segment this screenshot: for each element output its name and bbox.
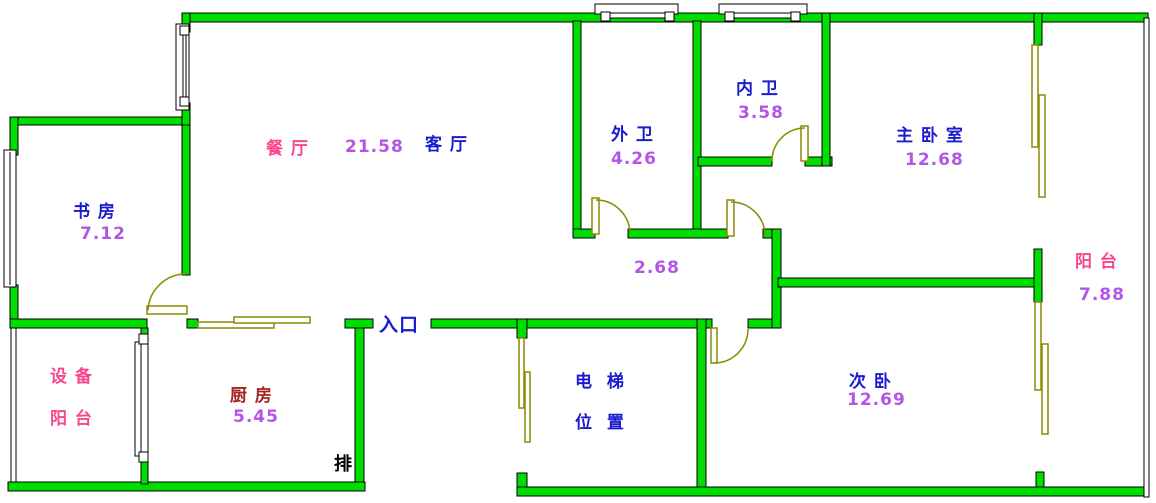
kitchen-sliding-door [198,317,310,328]
outer-bath-label: 外 卫 [611,127,654,144]
study-door [147,274,187,314]
corridor-area: 2.68 [634,260,680,277]
equipment-balcony-label-2: 阳 台 [50,411,93,428]
second-balcony-sliding-door [1035,302,1048,434]
second-bedroom-area: 12.69 [847,392,906,409]
outer-bath-area: 4.26 [611,151,657,168]
balcony-area: 7.88 [1079,287,1125,304]
elevator-sliding-door [519,338,530,442]
kitchen-area: 5.45 [233,409,279,426]
kitchen-divider-window [135,334,148,462]
master-bedroom-label: 主 卧 室 [896,128,964,145]
kitchen-label: 厨 房 [230,388,273,405]
master-bedroom-area: 12.68 [905,152,964,169]
left-upper-window [176,24,189,110]
dining-room-label: 餐 厅 [266,141,309,158]
inner-bath-area: 3.58 [738,105,784,122]
elevator-label-1: 电 梯 [575,374,625,391]
balcony-label: 阳 台 [1075,254,1118,271]
inner-bath-label: 内 卫 [736,81,779,98]
elevator-label-2: 位 置 [575,415,625,432]
inner-bath-outer-door [727,200,765,236]
floor-plan: 餐 厅 21.58 客 厅 书 房 7.12 外 卫 4.26 内 卫 3.58… [0,0,1156,503]
entrance-label: 入口 [379,316,419,335]
second-bedroom-door [711,328,748,363]
outer-bath-bay-window [595,4,678,21]
living-room-label: 客 厅 [425,137,468,154]
study-area: 7.12 [80,226,126,243]
study-label: 书 房 [73,204,116,221]
exhaust-label: 排 [334,456,353,474]
equipment-balcony-label-1: 设 备 [50,369,93,386]
outer-bath-door [592,198,630,234]
second-bedroom-label: 次 卧 [849,374,892,391]
master-balcony-sliding-door [1032,45,1045,197]
inner-bath-door [772,126,808,161]
dining-room-area: 21.58 [345,139,404,156]
inner-bath-bay-window [719,4,807,21]
study-left-window [4,150,16,287]
